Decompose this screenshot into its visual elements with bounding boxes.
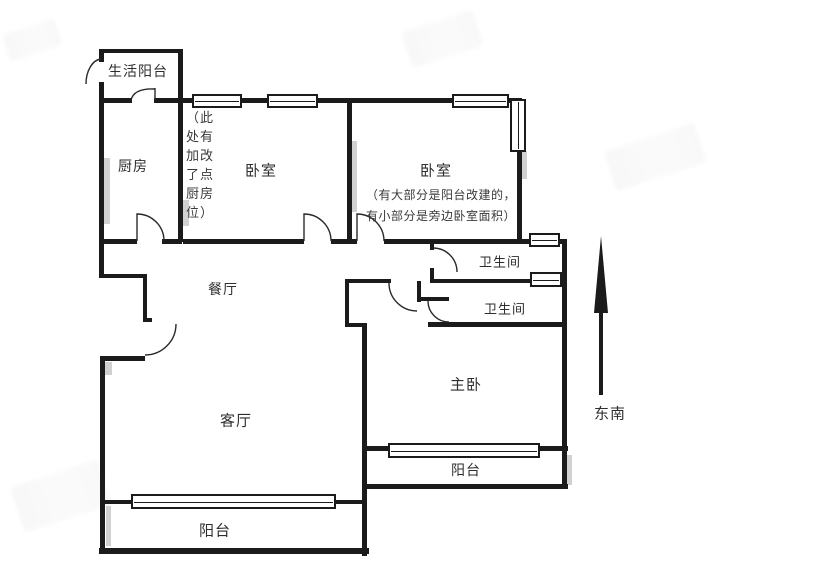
wall-segment bbox=[362, 484, 568, 489]
window bbox=[510, 99, 526, 152]
wall-shadow bbox=[352, 141, 357, 212]
door-arc bbox=[131, 88, 155, 100]
wall-segment bbox=[143, 318, 152, 322]
room-label-living: 客厅 bbox=[220, 410, 252, 431]
door-arc bbox=[137, 214, 164, 241]
wall-shadow bbox=[567, 455, 572, 485]
wall-segment bbox=[437, 239, 531, 244]
wall-segment bbox=[334, 500, 364, 504]
wall-segment bbox=[99, 239, 137, 244]
room-label-balcony-right: 阳台 bbox=[451, 460, 481, 480]
watermark-smudge bbox=[2, 18, 63, 62]
wall-segment bbox=[143, 278, 147, 322]
window bbox=[267, 94, 318, 108]
compass-stem bbox=[599, 310, 603, 395]
wall-segment bbox=[178, 49, 183, 242]
wall-segment bbox=[162, 239, 182, 244]
wall-segment bbox=[100, 356, 145, 361]
wall-segment bbox=[99, 243, 104, 278]
wall-segment bbox=[362, 327, 367, 556]
wall-segment bbox=[345, 283, 349, 327]
wall-segment bbox=[430, 241, 434, 250]
room-label-kitchen: 厨房 bbox=[118, 156, 148, 176]
wall-segment bbox=[331, 239, 357, 244]
watermark-smudge bbox=[10, 459, 112, 533]
wall-segment bbox=[538, 446, 568, 451]
wall-segment bbox=[240, 98, 269, 103]
wall-segment bbox=[100, 356, 105, 504]
wall-segment bbox=[428, 322, 567, 327]
wall-shadow bbox=[106, 506, 111, 546]
wall-segment bbox=[100, 274, 147, 278]
wall-segment bbox=[345, 279, 391, 283]
wall-segment bbox=[316, 98, 454, 103]
watermark-smudge bbox=[604, 122, 707, 191]
compass-label: 东南 bbox=[594, 403, 626, 424]
wall-segment bbox=[517, 150, 522, 241]
watermark-smudge bbox=[401, 9, 484, 68]
wall-segment bbox=[99, 548, 369, 554]
door-arc bbox=[389, 283, 417, 311]
room-label-life-balcony: 生活阳台 bbox=[108, 61, 168, 81]
wall-shadow bbox=[104, 362, 112, 375]
room-label-bedroom-2: 卧室 bbox=[420, 160, 452, 181]
window bbox=[530, 272, 562, 287]
room-label-master-bedroom: 主卧 bbox=[450, 374, 482, 395]
wall-segment bbox=[183, 239, 304, 244]
door-arc bbox=[145, 324, 176, 355]
room-label-bathroom-1: 卫生间 bbox=[479, 252, 521, 271]
wall-segment bbox=[100, 504, 105, 553]
window bbox=[452, 94, 509, 108]
room-label-bedroom-1: 卧室 bbox=[245, 160, 277, 181]
door-arc bbox=[304, 214, 331, 241]
bedroom-2-note-line1: （有大部分是阳台改建的， bbox=[366, 186, 516, 203]
wall-segment bbox=[362, 446, 390, 451]
floor-plan: 生活阳台 厨房 卧室 （此处有加改了点厨房位） 卧室 （有大部分是阳台改建的， … bbox=[0, 0, 814, 569]
wall-segment bbox=[99, 103, 104, 243]
wall-segment bbox=[99, 49, 182, 53]
compass-arrow-icon bbox=[594, 236, 608, 313]
wall-shadow bbox=[104, 158, 110, 224]
room-label-bathroom-2: 卫生间 bbox=[484, 299, 526, 318]
door-arc bbox=[428, 301, 449, 322]
bedroom-2-note-line2: 有小部分是旁边卧室面积） bbox=[366, 207, 516, 224]
wall-segment bbox=[430, 279, 532, 283]
wall-segment bbox=[347, 102, 352, 241]
room-label-dining: 餐厅 bbox=[208, 279, 238, 299]
window bbox=[388, 443, 540, 458]
window bbox=[529, 233, 560, 247]
bedroom-1-note: （此处有加改了点厨房位） bbox=[186, 108, 216, 222]
door-arc bbox=[86, 59, 101, 84]
door-arc bbox=[433, 248, 457, 272]
room-label-balcony-bottom: 阳台 bbox=[199, 520, 231, 541]
window bbox=[192, 94, 242, 108]
wall-segment bbox=[421, 297, 449, 301]
wall-segment bbox=[99, 53, 104, 62]
window bbox=[131, 494, 336, 509]
